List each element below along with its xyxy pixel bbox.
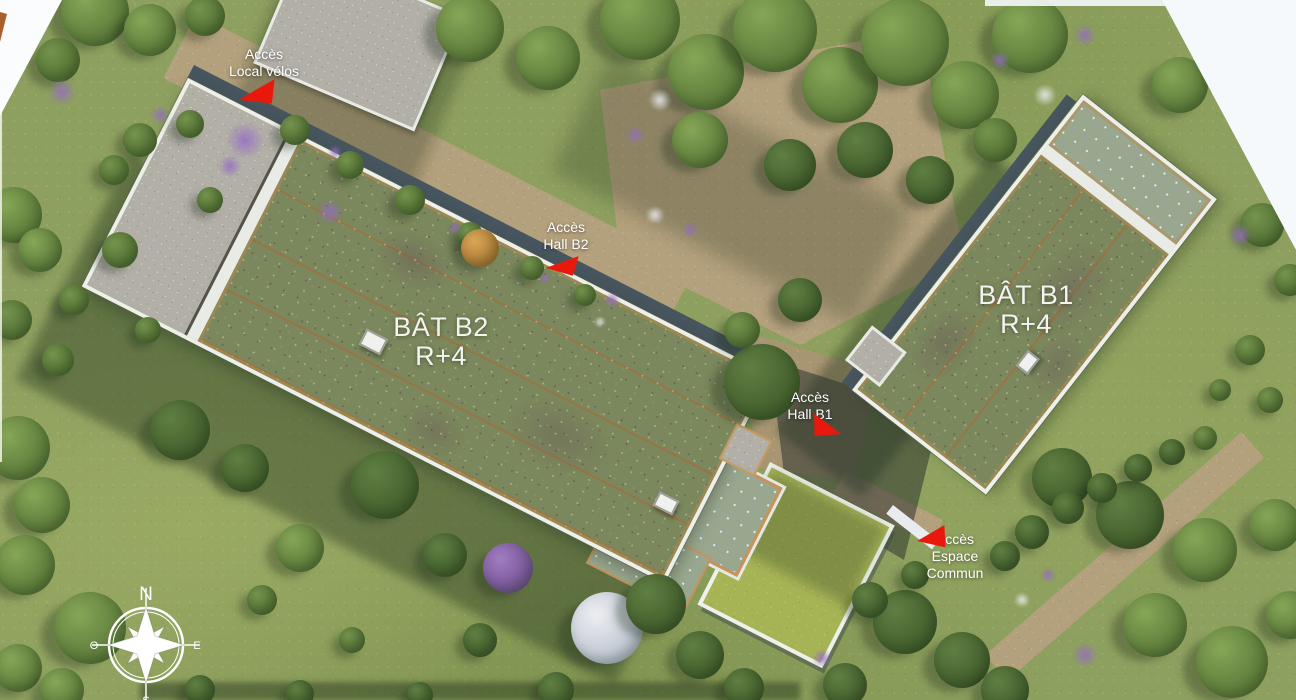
compass-north-label: N: [139, 584, 153, 605]
building-b2-level: R+4: [356, 342, 526, 371]
compass-rose: N S E O: [86, 584, 206, 700]
access-label-line: Local vélos: [198, 63, 330, 80]
building-b1-label: BÂT B1 R+4: [941, 281, 1111, 339]
building-b2-label: BÂT B2 R+4: [356, 313, 526, 371]
building-b2-name: BÂT B2: [356, 313, 526, 342]
access-label-local-velos: Accès Local vélos: [198, 46, 330, 80]
access-label-line: Espace: [905, 548, 1005, 565]
access-label-line: Accès: [198, 46, 330, 63]
building-b1-name: BÂT B1: [941, 281, 1111, 310]
crop-edge-top: [985, 0, 1165, 6]
access-label-line: Commun: [905, 565, 1005, 582]
access-label-hall-b1: Accès Hall B1: [760, 389, 860, 423]
compass-south-label: S: [142, 695, 149, 700]
compass-east-label: E: [193, 640, 200, 652]
site-plan-rendering: N S E O BÂT B2 R+4 BÂT B1 R+4 Accès Loca…: [0, 0, 1296, 700]
access-label-line: Hall B2: [516, 236, 616, 253]
compass-west-label: O: [90, 640, 99, 652]
access-label-hall-b2: Accès Hall B2: [516, 219, 616, 253]
access-label-line: Accès: [760, 389, 860, 406]
access-label-line: Hall B1: [760, 406, 860, 423]
access-label-line: Accès: [516, 219, 616, 236]
crop-edge-left: [0, 112, 2, 462]
building-b1-level: R+4: [941, 310, 1111, 339]
access-label-espace-commun: Accès Espace Commun: [905, 531, 1005, 582]
south-hedge-shadow: [140, 682, 800, 700]
